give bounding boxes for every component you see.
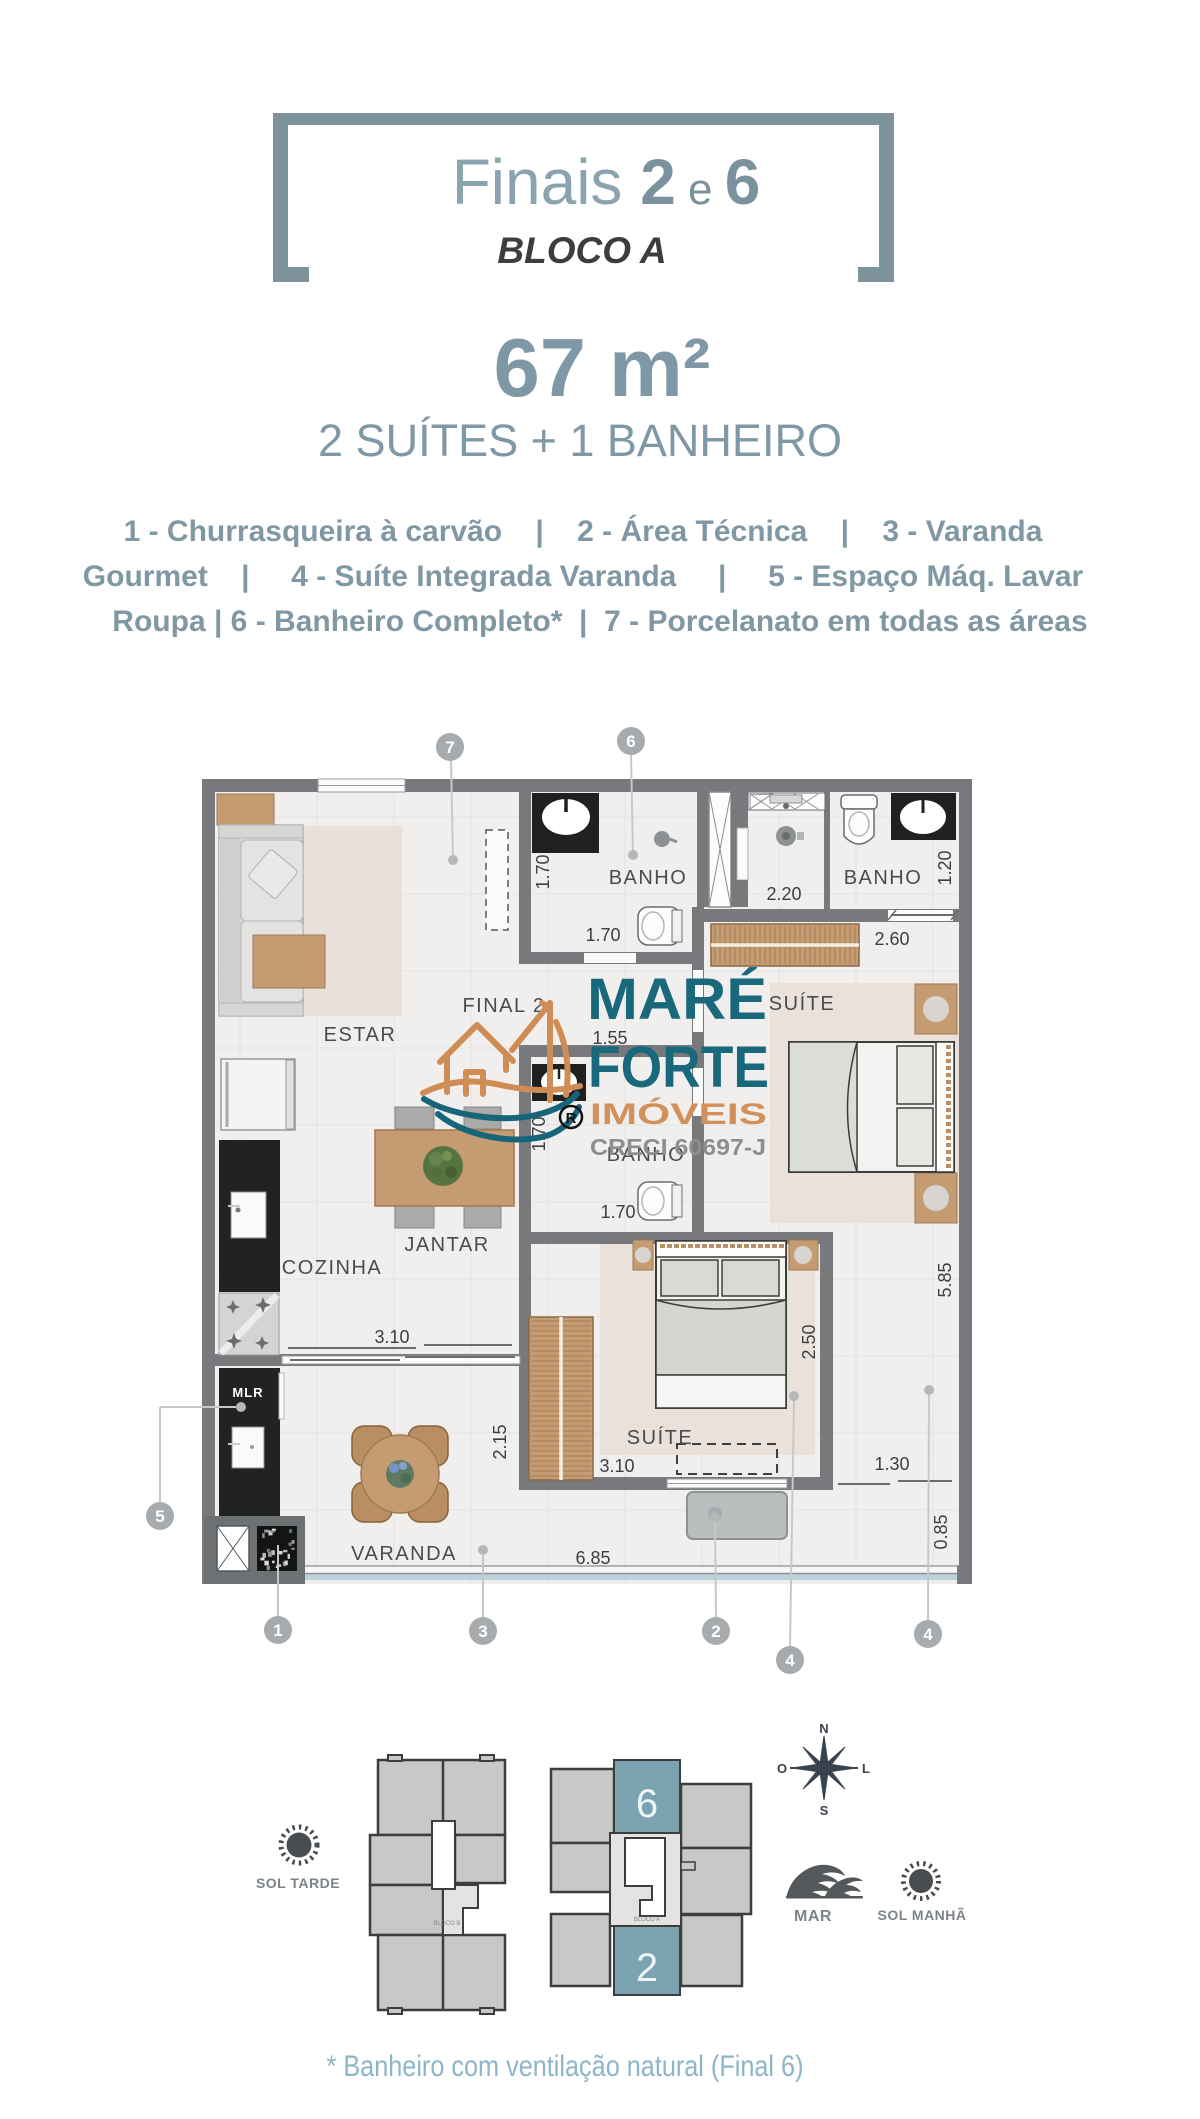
svg-text:MAR: MAR: [794, 1908, 832, 1925]
svg-text:L: L: [862, 1761, 870, 1776]
svg-text:2.50: 2.50: [799, 1324, 819, 1359]
svg-text:2.20: 2.20: [766, 884, 801, 904]
svg-text:2.60: 2.60: [874, 929, 909, 949]
svg-text:2.15: 2.15: [490, 1424, 510, 1459]
svg-text:0.85: 0.85: [931, 1514, 951, 1549]
svg-text:Gourmet | 4 - Suíte Int: Gourmet | 4 - Suíte Integrada Varanda | …: [83, 560, 1084, 593]
svg-text:VARANDA: VARANDA: [351, 1543, 457, 1565]
svg-text:2: 2: [636, 1946, 658, 1990]
svg-text:4: 4: [923, 1625, 933, 1644]
svg-text:BLOCO B: BLOCO B: [434, 1921, 461, 1927]
svg-text:O: O: [777, 1761, 787, 1776]
svg-text:2: 2: [711, 1622, 720, 1641]
svg-text:SOL MANHÃ: SOL MANHÃ: [877, 1906, 966, 1923]
svg-text:R: R: [566, 1110, 577, 1127]
svg-text:4: 4: [785, 1651, 795, 1670]
svg-text:1.30: 1.30: [874, 1454, 909, 1474]
svg-text:3: 3: [478, 1622, 487, 1641]
svg-text:SOL TARDE: SOL TARDE: [256, 1875, 340, 1891]
svg-text:7: 7: [445, 738, 454, 757]
svg-text:BANHO: BANHO: [844, 867, 923, 889]
svg-text:2 SUÍTES + 1 BANHEIRO: 2 SUÍTES + 1 BANHEIRO: [318, 415, 842, 466]
svg-text:BANHO: BANHO: [609, 867, 688, 889]
svg-text:SUÍTE: SUÍTE: [769, 992, 835, 1015]
svg-text:CRECI 60697-J: CRECI 60697-J: [590, 1134, 766, 1160]
svg-text:1.20: 1.20: [935, 850, 955, 885]
svg-text:S: S: [820, 1803, 829, 1818]
svg-text:BLOCO A: BLOCO A: [634, 1917, 660, 1923]
svg-text:1: 1: [273, 1621, 282, 1640]
svg-text:5.85: 5.85: [935, 1262, 955, 1297]
svg-text:FINAL 2: FINAL 2: [462, 995, 545, 1017]
svg-text:3.10: 3.10: [374, 1327, 409, 1347]
svg-text:ESTAR: ESTAR: [324, 1024, 397, 1046]
svg-text:MARÉ: MARÉ: [587, 967, 767, 1032]
svg-text:N: N: [819, 1721, 828, 1736]
svg-text:1.70: 1.70: [600, 1202, 635, 1222]
svg-text:1.70: 1.70: [585, 925, 620, 945]
svg-text:MLR: MLR: [232, 1385, 263, 1400]
svg-text:6: 6: [626, 732, 635, 751]
svg-text:* Banheiro com ventilação natu: * Banheiro com ventilação natural (Final…: [327, 2050, 804, 2083]
svg-text:6: 6: [636, 1782, 658, 1826]
svg-text:1 - Churrasqueira à carvão: 1 - Churrasqueira à carvão | 2 - Área Té…: [124, 514, 1043, 548]
svg-text:1.70: 1.70: [533, 854, 553, 889]
svg-text:SUÍTE: SUÍTE: [627, 1426, 693, 1449]
svg-text:JANTAR: JANTAR: [404, 1234, 489, 1256]
svg-text:5: 5: [155, 1507, 164, 1526]
svg-text:COZINHA: COZINHA: [282, 1257, 383, 1279]
svg-text:IMÓVEIS: IMÓVEIS: [590, 1097, 767, 1131]
svg-text:6.85: 6.85: [575, 1548, 610, 1568]
svg-text:FORTE: FORTE: [588, 1035, 769, 1100]
svg-text:3.10: 3.10: [599, 1456, 634, 1476]
svg-text:67 m²: 67 m²: [494, 321, 711, 414]
svg-text:Roupa | 6 - Banheiro Completo*: Roupa | 6 - Banheiro Completo* | 7 - Por…: [112, 605, 1087, 638]
svg-text:BLOCO A: BLOCO A: [497, 230, 666, 271]
